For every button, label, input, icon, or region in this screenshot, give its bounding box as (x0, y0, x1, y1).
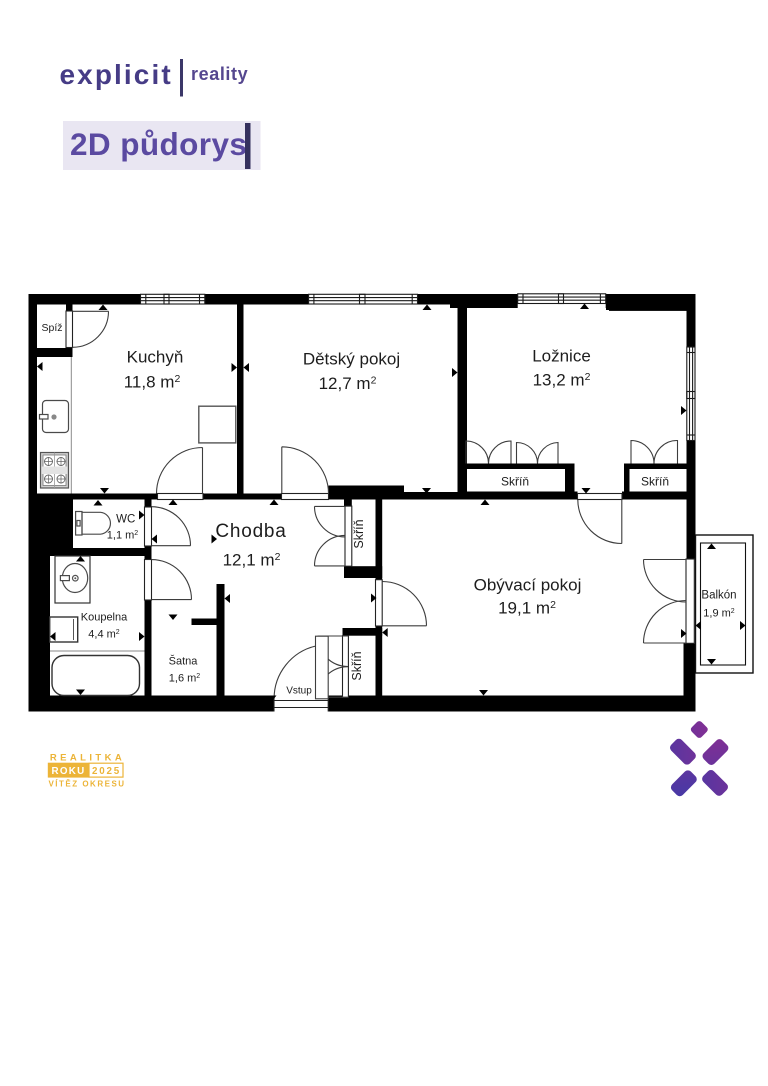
svg-text:Vstup: Vstup (286, 686, 312, 697)
svg-text:REALITKA: REALITKA (50, 753, 125, 764)
svg-text:2025: 2025 (92, 766, 121, 777)
svg-text:Skříň: Skříň (352, 519, 366, 548)
svg-text:Dětský pokoj: Dětský pokoj (303, 350, 400, 369)
svg-text:12,1 m2: 12,1 m2 (223, 551, 281, 570)
svg-text:12,7 m2: 12,7 m2 (319, 374, 377, 393)
svg-text:Koupelna: Koupelna (81, 612, 128, 624)
svg-text:4,4 m2: 4,4 m2 (88, 629, 120, 641)
svg-text:VÍTĚZ OKRESU: VÍTĚZ OKRESU (48, 780, 125, 789)
svg-text:Skříň: Skříň (350, 651, 364, 680)
svg-text:explicit: explicit (60, 59, 173, 90)
svg-text:Obývací pokoj: Obývací pokoj (474, 576, 582, 595)
svg-text:2D půdorys: 2D půdorys (70, 126, 247, 162)
svg-text:11,8 m2: 11,8 m2 (124, 373, 181, 392)
svg-text:13,2 m2: 13,2 m2 (533, 371, 591, 390)
svg-text:1,9 m2: 1,9 m2 (703, 608, 735, 620)
svg-text:WC: WC (116, 513, 135, 525)
svg-text:1,6 m2: 1,6 m2 (169, 673, 201, 685)
svg-text:Spíž: Spíž (41, 322, 62, 334)
svg-text:reality: reality (191, 64, 248, 84)
svg-text:Skříň: Skříň (641, 475, 669, 489)
svg-text:Skříň: Skříň (501, 475, 529, 489)
svg-text:Ložnice: Ložnice (532, 347, 591, 366)
svg-text:Chodba: Chodba (215, 521, 286, 542)
svg-text:ROKU: ROKU (51, 766, 85, 777)
svg-text:1,1 m2: 1,1 m2 (107, 530, 139, 542)
svg-text:Kuchyň: Kuchyň (127, 348, 184, 367)
svg-text:Šatna: Šatna (169, 655, 199, 668)
svg-text:Balkón: Balkón (701, 590, 736, 602)
svg-text:19,1 m2: 19,1 m2 (498, 599, 556, 618)
